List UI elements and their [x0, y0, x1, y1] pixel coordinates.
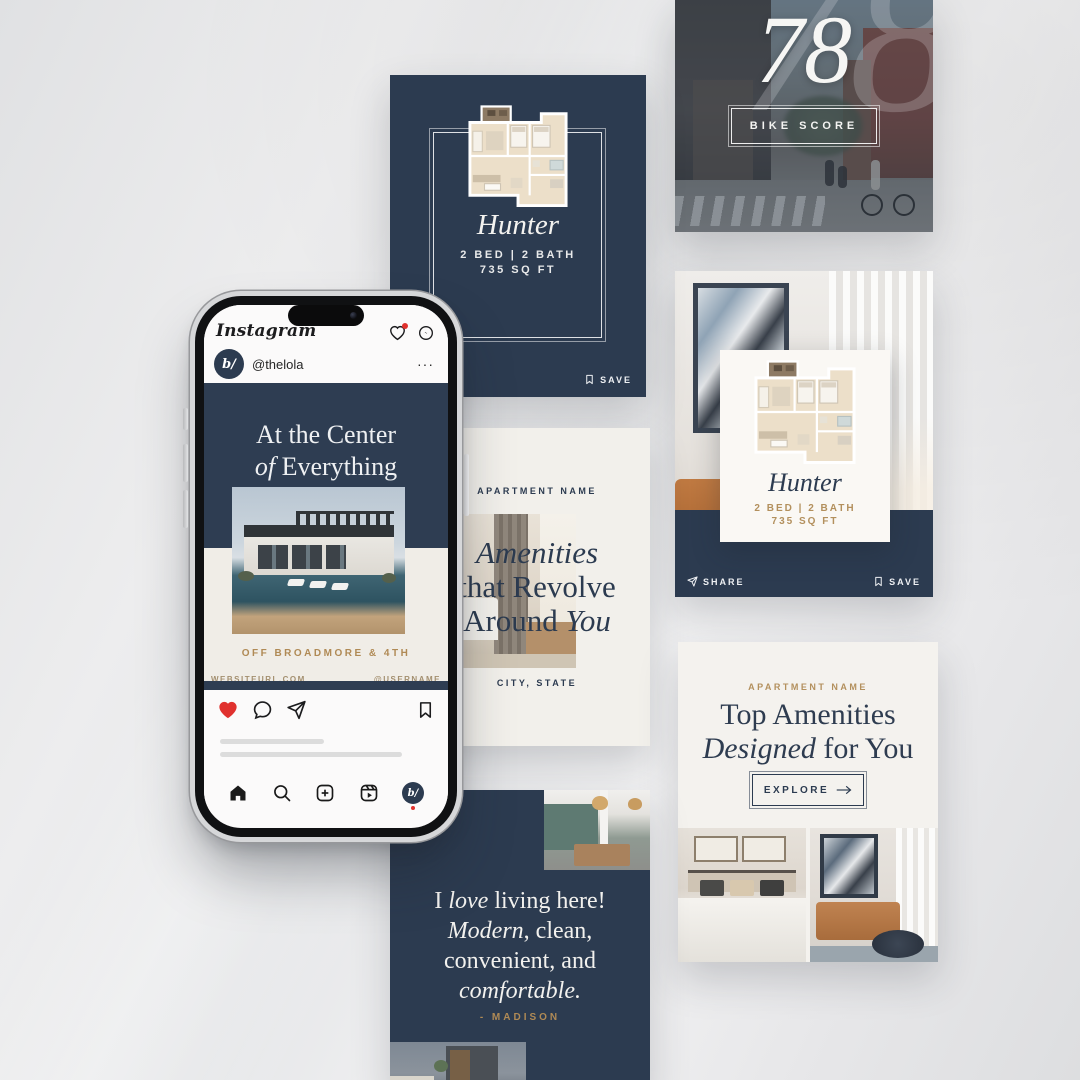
floorplan-panel: Hunter 2 BED | 2 BATH 735 SQ FT: [720, 350, 890, 542]
like-icon: [217, 700, 239, 720]
phone-screen: Instagram b/ @thelola ··· At the Center: [204, 305, 448, 828]
top-amenities-headline: Top Amenities Designed for You: [678, 698, 938, 766]
bike-score-label: BIKE SCORE: [732, 109, 876, 143]
city-state-label: CITY, STATE: [424, 678, 650, 688]
dynamic-island: [288, 305, 364, 326]
comment-icon: [252, 700, 273, 720]
floorplan-specs: 2 BED | 2 BATH: [390, 249, 646, 261]
apartment-name-eyebrow: APARTMENT NAME: [424, 486, 650, 496]
kitchen-photo: [390, 1042, 526, 1080]
share-label: SHARE: [703, 577, 745, 587]
instagram-post: At the Center of Everything OFF BROADMOR…: [204, 383, 448, 690]
create-icon: [315, 783, 335, 803]
home-tab[interactable]: [228, 783, 248, 803]
quote-l2a: Modern: [448, 918, 524, 944]
post-headline-line1: At the Center: [256, 420, 396, 449]
bike-score-card: 78 78 BIKE SCORE: [675, 0, 933, 232]
iphone-mockup: Instagram b/ @thelola ··· At the Center: [195, 296, 457, 837]
share-button[interactable]: SHARE: [687, 576, 745, 587]
search-tab[interactable]: [272, 783, 292, 803]
share-icon: [687, 576, 698, 587]
activity-button[interactable]: [389, 325, 406, 341]
like-button[interactable]: [217, 700, 239, 720]
floorplan-overlay-card: Hunter 2 BED | 2 BATH 735 SQ FT SHARE SA…: [675, 271, 933, 597]
comment-button[interactable]: [252, 700, 273, 720]
avatar-monogram: b/: [222, 357, 236, 372]
messages-button[interactable]: [418, 325, 434, 341]
profile-tab[interactable]: b/: [402, 782, 424, 804]
testimonial-card: I love living here! Modern, clean, conve…: [390, 790, 650, 1080]
headline-line2-rest: for You: [816, 732, 914, 765]
save-label: SAVE: [889, 577, 921, 587]
floorplan-specs: 2 BED | 2 BATH: [720, 503, 890, 514]
living-room-photo: [810, 828, 938, 962]
save-bookmark-icon: [584, 374, 595, 385]
explore-arrow-icon: [836, 785, 852, 795]
action-button[interactable]: [183, 408, 188, 430]
share-post-button[interactable]: [286, 700, 307, 720]
explore-label: EXPLORE: [764, 785, 829, 796]
save-label: SAVE: [600, 375, 632, 385]
save-button[interactable]: SAVE: [584, 374, 632, 385]
quote-l3: convenient, and: [444, 948, 596, 974]
amenities-headline: Amenities that Revolve Around You: [424, 536, 650, 638]
create-tab[interactable]: [315, 783, 335, 803]
headline-line2: that Revolve: [458, 569, 616, 604]
headline-line2-italic: Designed: [703, 732, 816, 765]
testimonial-quote: I love living here! Modern, clean, conve…: [390, 886, 650, 1006]
top-amenities-card: APARTMENT NAME Top Amenities Designed fo…: [678, 642, 938, 962]
headline-line1: Top Amenities: [720, 698, 895, 731]
send-icon: [286, 700, 307, 720]
save-button[interactable]: SAVE: [873, 576, 921, 587]
quote-l1c: living here!: [488, 888, 605, 914]
floorplan-area: 735 SQ FT: [720, 516, 890, 527]
headline-line3-start: Around: [463, 603, 565, 638]
floorplan-area: 735 SQ FT: [390, 264, 646, 276]
post-avatar[interactable]: b/: [214, 349, 244, 379]
explore-button[interactable]: EXPLORE: [752, 774, 864, 806]
floor-plan-image: [454, 105, 582, 207]
notification-dot: [402, 323, 408, 329]
bedroom-photo: [678, 828, 806, 962]
messenger-icon: [418, 325, 434, 341]
post-username[interactable]: @thelola: [252, 357, 417, 372]
floorplan-name: Hunter: [390, 209, 646, 242]
save-bookmark-icon: [873, 576, 884, 587]
quote-l1b: love: [448, 888, 488, 914]
bookmark-icon: [416, 700, 435, 720]
testimonial-author: - MADISON: [390, 1012, 650, 1023]
quote-l2b: , clean,: [524, 918, 593, 944]
volume-down-button[interactable]: [183, 490, 188, 528]
floorplan-name: Hunter: [720, 468, 890, 498]
amenities-card: APARTMENT NAME Amenities that Revolve Ar…: [424, 428, 650, 746]
house-pool-photo: [232, 487, 405, 634]
post-headline-line2-rest: Everything: [275, 452, 397, 481]
apartment-name-eyebrow: APARTMENT NAME: [678, 682, 938, 692]
reels-tab[interactable]: [359, 783, 379, 803]
quote-l4: comfortable.: [459, 978, 581, 1004]
volume-up-button[interactable]: [183, 444, 188, 482]
post-headline-line2-italic: of: [255, 452, 275, 481]
home-icon: [228, 783, 248, 803]
caption-placeholder: [220, 739, 402, 765]
search-icon: [272, 783, 292, 803]
bike-score-label-frame: BIKE SCORE: [731, 108, 877, 144]
floor-plan-image: [739, 360, 871, 464]
bike-score-number: 78: [675, 2, 933, 98]
headline-line3-italic: You: [566, 603, 611, 638]
game-room-photo: [544, 790, 650, 870]
avatar-monogram: b/: [408, 788, 419, 799]
post-headline: At the Center of Everything: [204, 419, 448, 483]
front-camera: [350, 312, 357, 319]
reels-icon: [359, 783, 379, 803]
post-caption: OFF BROADMORE & 4TH: [204, 648, 448, 659]
power-button[interactable]: [464, 454, 469, 516]
headline-line1: Amenities: [476, 535, 598, 570]
more-options-button[interactable]: ···: [417, 356, 434, 372]
notification-dot: [411, 806, 415, 810]
quote-l1a: I: [434, 888, 448, 914]
save-post-button[interactable]: [416, 700, 435, 720]
